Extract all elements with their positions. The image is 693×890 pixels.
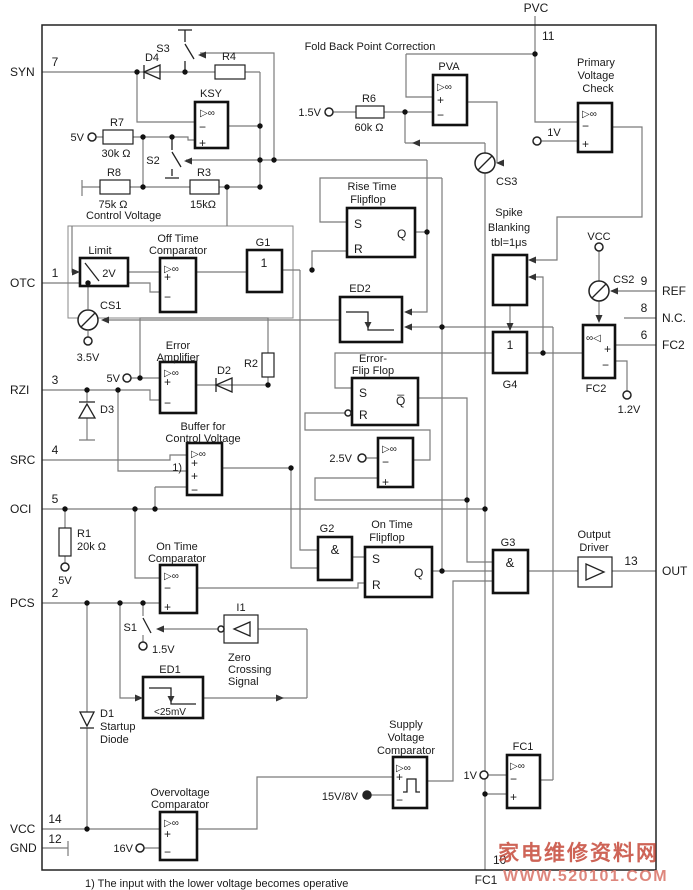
- wires: [42, 16, 656, 870]
- r1-value: 20k Ω: [77, 541, 106, 553]
- rtff-q: Q: [397, 227, 406, 241]
- g1-gate-symbol: 1: [261, 256, 268, 270]
- ed2-label: ED2: [349, 283, 370, 295]
- pva-opamp-icon: ▷∞: [437, 82, 452, 93]
- output-driver-label-1: Output: [577, 529, 610, 541]
- junction-dot: [257, 184, 262, 189]
- arrow-cs3-feed: [412, 140, 420, 147]
- ea-5v-label: 5V: [107, 373, 121, 385]
- fc1-minus: −: [510, 772, 517, 786]
- otcomp-plus: +: [164, 600, 171, 614]
- cs2-vcc-label: VCC: [587, 231, 610, 243]
- comp25-minus: −: [382, 455, 389, 469]
- junction-dot: [84, 600, 89, 605]
- otff-s: S: [372, 552, 380, 566]
- footnote-marker: 1): [172, 462, 182, 474]
- limit-value: 2V: [102, 268, 116, 280]
- comp-2v5-label: 2.5V: [329, 453, 352, 465]
- junction-dot: [271, 157, 276, 162]
- junction-dot: [140, 184, 145, 189]
- schematic-page: SYN 7 OTC 1 RZI 3 SRC 4 OCI 5 PCS 2 VCC …: [0, 0, 693, 890]
- cs3-label: CS3: [496, 176, 517, 188]
- g2-gate-symbol: &: [331, 542, 340, 557]
- arrow-cs2-to-fc2: [596, 315, 603, 323]
- limit-label: Limit: [88, 245, 111, 257]
- d2-label: D2: [217, 365, 231, 377]
- buffer-plus-2: +: [191, 469, 198, 483]
- terminal-16v-ovc: [136, 844, 144, 852]
- spike-blanking-label-3: tbl=1μs: [491, 237, 527, 249]
- pin-num-vcc: 14: [48, 812, 62, 826]
- cs1-3v5-label: 3.5V: [77, 352, 100, 364]
- junction-dot: [464, 497, 469, 502]
- pvcheck-minus: −: [582, 119, 589, 133]
- g2-label: G2: [320, 523, 335, 535]
- fc1-opamp-icon: ▷∞: [510, 761, 525, 772]
- terminal-1v5-r6: [325, 108, 333, 116]
- fc2-1v2-label: 1.2V: [618, 404, 641, 416]
- pin-label-ref: REF: [662, 284, 686, 298]
- svc-minus: −: [396, 793, 403, 807]
- ed1-value: <25mV: [154, 707, 186, 718]
- pin-label-out: OUT: [662, 564, 688, 578]
- resistor-r8: [100, 180, 130, 194]
- arrow-into-ed2-2: [404, 324, 412, 331]
- rise-time-ff-label-1: Rise Time: [348, 181, 397, 193]
- r7-5v-label: 5V: [71, 132, 85, 144]
- d3-label: D3: [100, 404, 114, 416]
- off-time-comp-label-1: Off Time: [157, 233, 198, 245]
- pin-num-out: 13: [624, 554, 638, 568]
- junction-dot: [169, 134, 174, 139]
- pin-num-fc2: 6: [641, 328, 648, 342]
- on-time-comp-label-2: Comparator: [148, 553, 206, 565]
- r1-label: R1: [77, 528, 91, 540]
- resistor-r4: [215, 65, 245, 79]
- junction-dot: [152, 506, 157, 511]
- pin-num-syn: 7: [52, 55, 59, 69]
- wire-bottom-bundle: [42, 173, 656, 870]
- error-ff-r-bubble: [345, 410, 351, 416]
- ksy-plus: +: [199, 136, 206, 150]
- rise-time-ff-label-2: Flipflop: [350, 194, 385, 206]
- comp25-opamp-icon: ▷∞: [382, 444, 397, 455]
- svc-plus: +: [396, 770, 403, 784]
- arrowheads: [72, 52, 618, 704]
- s1-label: S1: [124, 622, 137, 634]
- on-time-ff-label-2: Flipflop: [369, 532, 404, 544]
- pin-label-fc2: FC2: [662, 338, 685, 352]
- junction-dots: [62, 51, 545, 831]
- control-voltage-label: Control Voltage: [86, 210, 161, 222]
- s1-switch: [143, 618, 151, 633]
- rtff-s: S: [354, 217, 362, 231]
- buffer-minus: −: [191, 483, 198, 497]
- pin-num-gnd: 12: [48, 832, 62, 846]
- pin-label-pcs: PCS: [10, 596, 35, 610]
- resistor-r3: [190, 180, 219, 194]
- g4-label: G4: [503, 379, 518, 391]
- terminal-5v-error-amp: [123, 374, 131, 382]
- i1-inverter-block: [224, 615, 258, 643]
- pva-minus: −: [437, 108, 444, 122]
- cs2-label: CS2: [613, 274, 634, 286]
- junction-dot: [482, 791, 487, 796]
- s1-1v5-label: 1.5V: [152, 644, 175, 656]
- ksy-minus: −: [199, 120, 206, 134]
- r3-value: 15kΩ: [190, 199, 216, 211]
- g4-gate-symbol: 1: [507, 338, 514, 352]
- ea-plus: +: [164, 375, 171, 389]
- rtff-r: R: [354, 242, 363, 256]
- error-amp-label-2: Amplifier: [157, 352, 200, 364]
- pvcheck-plus: +: [582, 137, 589, 151]
- ovc-16v-label: 16V: [113, 843, 133, 855]
- junction-dot: [257, 123, 262, 128]
- arrow-into-s2: [184, 158, 192, 165]
- ref-1v-label: 1V: [547, 127, 561, 139]
- ed2-block: [340, 297, 402, 342]
- fc2-minus: −: [602, 358, 609, 372]
- pin-label-oci: OCI: [10, 502, 31, 516]
- junction-dot: [132, 506, 137, 511]
- arrow-into-s1: [156, 626, 164, 633]
- pin-num-rzi: 3: [52, 373, 59, 387]
- junction-dot: [424, 229, 429, 234]
- off-time-comp-label-2: Comparator: [149, 245, 207, 257]
- resistor-r6: [356, 106, 384, 118]
- error-ff-label-2: Flip Flop: [352, 365, 394, 377]
- pin-num-oci: 5: [52, 492, 59, 506]
- terminal-3v5-cs1: [84, 337, 92, 345]
- junction-dot: [439, 568, 444, 573]
- junction-dot: [140, 600, 145, 605]
- junction-dot: [84, 387, 89, 392]
- ed1-label: ED1: [159, 664, 180, 676]
- arrow-into-spike-blanking-2: [528, 274, 536, 281]
- pin-label-nc: N.C.: [662, 311, 686, 325]
- watermark-url: WWW.520101.COM: [503, 868, 668, 885]
- s3-switch: [178, 30, 194, 72]
- r4-label: R4: [222, 51, 236, 63]
- pin-label-gnd: GND: [10, 841, 37, 855]
- erff-qbar: Q̅: [396, 394, 405, 408]
- r1-5v-label: 5V: [58, 575, 72, 587]
- junction-dot: [482, 506, 487, 511]
- buffer-label-2: Control Voltage: [165, 433, 240, 445]
- r6-1v5-label: 1.5V: [298, 107, 321, 119]
- watermark-site-name: 家电维修资料网: [498, 841, 659, 865]
- d1-label-1: D1: [100, 708, 114, 720]
- junction-dot: [182, 69, 187, 74]
- r6-label: R6: [362, 93, 376, 105]
- i1-label: I1: [236, 602, 245, 614]
- error-ff-label-1: Error-: [359, 353, 387, 365]
- pin-label-syn: SYN: [10, 65, 35, 79]
- r8-label: R8: [107, 167, 121, 179]
- pin-num-nc: 8: [641, 301, 648, 315]
- d1-startup-diode: [80, 712, 94, 728]
- smps-ic-block-diagram: SYN 7 OTC 1 RZI 3 SRC 4 OCI 5 PCS 2 VCC …: [0, 0, 693, 890]
- junction-dot: [84, 826, 89, 831]
- on-time-ff-label-1: On Time: [371, 519, 413, 531]
- comp25-plus: +: [382, 475, 389, 489]
- pin-num-pvc: 11: [542, 29, 555, 43]
- s2-label: S2: [146, 155, 159, 167]
- junction-dot: [402, 109, 407, 114]
- ksy-opamp-icon: ▷∞: [200, 108, 215, 119]
- ic-boundary: [42, 25, 656, 870]
- buffer-label-1: Buffer for: [180, 421, 225, 433]
- spike-blanking-label-1: Spike: [495, 207, 523, 219]
- terminal-1v5-s1: [139, 642, 147, 650]
- zero-crossing-label-2: Crossing: [228, 664, 271, 676]
- junction-dot: [224, 184, 229, 189]
- terminal-1v-pvcheck: [533, 137, 541, 145]
- junction-dot: [85, 280, 90, 285]
- pva-label: PVA: [438, 61, 460, 73]
- g3-gate-symbol: &: [506, 555, 515, 570]
- fc1-plus: +: [510, 790, 517, 804]
- pin-label-pvc: PVC: [524, 1, 549, 15]
- cs1-label: CS1: [100, 300, 121, 312]
- primary-check-label-1: Primary: [577, 57, 615, 69]
- primary-check-label-3: Check: [582, 83, 614, 95]
- junction-dot: [137, 375, 142, 380]
- fold-back-title: Fold Back Point Correction: [305, 41, 436, 53]
- svc-label-3: Comparator: [377, 745, 435, 757]
- pin-label-src: SRC: [10, 453, 36, 467]
- junction-dot: [439, 324, 444, 329]
- ovc-minus: −: [164, 845, 171, 859]
- fc2-opamp-icon: ∞◁: [586, 333, 601, 344]
- fc1-block-label: FC1: [513, 741, 534, 753]
- junction-dot: [115, 387, 120, 392]
- pin-label-rzi: RZI: [10, 383, 29, 397]
- zero-crossing-label-1: Zero: [228, 652, 251, 664]
- fc2-block-label: FC2: [586, 383, 607, 395]
- pin-label-fc1: FC1: [475, 873, 498, 887]
- ea-minus: −: [164, 396, 171, 410]
- ksy-label: KSY: [200, 88, 223, 100]
- footnote-text: 1) The input with the lower voltage beco…: [85, 878, 348, 890]
- s2-switch: [165, 139, 181, 178]
- output-driver-label-2: Driver: [579, 542, 609, 554]
- pin-label-otc: OTC: [10, 276, 36, 290]
- junction-dot: [62, 506, 67, 511]
- offcomp-minus: −: [164, 290, 171, 304]
- buffer-plus-1: +: [191, 456, 198, 470]
- junction-dot: [117, 600, 122, 605]
- resistor-r7: [103, 130, 133, 144]
- r3-label: R3: [197, 167, 211, 179]
- pin-num-src: 4: [52, 443, 59, 457]
- pin-num-ref: 9: [641, 274, 648, 288]
- terminal-1v2-fc2: [623, 391, 631, 399]
- fc1-1v-label: 1V: [464, 770, 478, 782]
- primary-check-label-2: Voltage: [578, 70, 615, 82]
- r7-value: 30k Ω: [101, 148, 130, 160]
- junction-dot: [265, 382, 270, 387]
- d1-label-2: Startup: [100, 721, 135, 733]
- otff-q: Q: [414, 566, 423, 580]
- svc-label-2: Voltage: [388, 732, 425, 744]
- junction-dot: [257, 157, 262, 162]
- s3-label: S3: [156, 43, 169, 55]
- on-time-comp-label-1: On Time: [156, 541, 198, 553]
- ovc-label-1: Overvoltage: [150, 787, 209, 799]
- otff-r: R: [372, 578, 381, 592]
- fc2-plus: +: [604, 342, 611, 356]
- i1-inversion-bubble: [218, 626, 224, 632]
- arrow-into-spike-blanking-1: [528, 257, 536, 264]
- junction-dot: [288, 465, 293, 470]
- svc-15v8v-label: 15V/8V: [322, 791, 359, 803]
- pin-num-pcs: 2: [52, 586, 59, 600]
- zero-crossing-label-3: Signal: [228, 676, 259, 688]
- terminal-5v-r7: [88, 133, 96, 141]
- junction-dot: [140, 134, 145, 139]
- erff-s: S: [359, 386, 367, 400]
- d3-diode: [79, 402, 95, 418]
- watermark: 家电维修资料网 WWW.520101.COM: [498, 841, 668, 885]
- error-amp-label-1: Error: [166, 340, 191, 352]
- ovc-label-2: Comparator: [151, 799, 209, 811]
- terminal-15v8v-svc: [363, 791, 371, 799]
- ovc-plus: +: [164, 827, 171, 841]
- offcomp-plus: +: [164, 270, 171, 284]
- otcomp-minus: −: [164, 581, 171, 595]
- svc-label-1: Supply: [389, 719, 423, 731]
- spike-blanking-block: [493, 255, 527, 305]
- junction-dot: [134, 69, 139, 74]
- arrow-into-cs2: [610, 288, 618, 295]
- d1-label-3: Diode: [100, 734, 129, 746]
- arrow-into-ed2-1: [404, 309, 412, 316]
- resistor-r2: [262, 353, 274, 377]
- pva-plus: +: [437, 93, 444, 107]
- r2-label: R2: [244, 358, 258, 370]
- g3-label: G3: [501, 537, 516, 549]
- junction-dot: [532, 51, 537, 56]
- r6-value: 60k Ω: [354, 122, 383, 134]
- resistor-r1: [59, 528, 71, 556]
- spike-blanking-label-2: Blanking: [488, 222, 530, 234]
- terminal-2v5-comp: [358, 454, 366, 462]
- arrow-ed1-out: [276, 695, 284, 702]
- terminal-1v-fc1: [480, 771, 488, 779]
- erff-r: R: [359, 408, 368, 422]
- terminal-vcc-cs2: [595, 243, 603, 251]
- g1-label: G1: [256, 237, 271, 249]
- pin-num-otc: 1: [52, 266, 59, 280]
- junction-dot: [540, 350, 545, 355]
- terminal-5v-r1: [61, 563, 69, 571]
- junction-dot: [309, 267, 314, 272]
- r7-label: R7: [110, 117, 124, 129]
- pin-label-vcc: VCC: [10, 822, 36, 836]
- output-driver-block: [578, 557, 612, 587]
